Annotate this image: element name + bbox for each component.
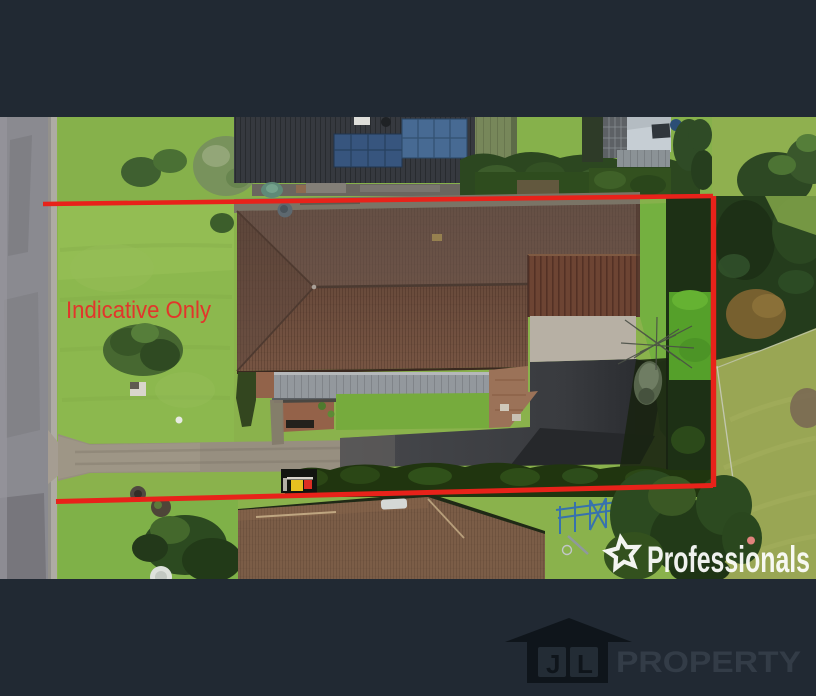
svg-text:L: L [577, 649, 593, 679]
svg-text:J: J [546, 649, 560, 679]
svg-text:PROPERTY: PROPERTY [616, 646, 801, 679]
svg-text:Indicative Only: Indicative Only [66, 297, 211, 324]
svg-text:Professionals: Professionals [647, 539, 810, 580]
